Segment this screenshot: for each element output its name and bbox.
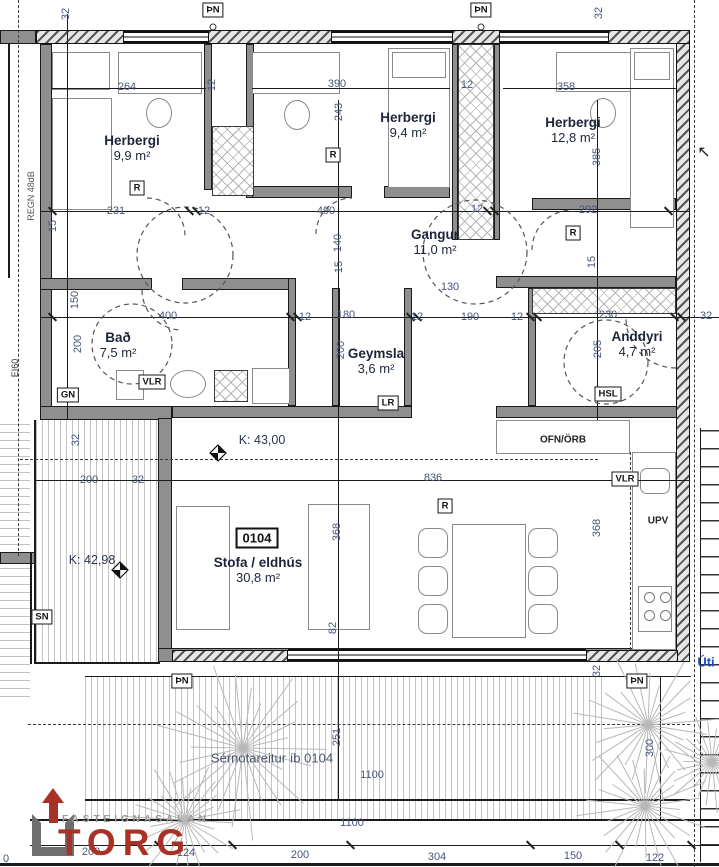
tag-hsl: HSL <box>595 387 622 402</box>
dimension-label: 368 <box>591 519 603 537</box>
dimension-label: 205 <box>592 340 604 358</box>
property-dashed-line <box>18 0 19 556</box>
stove-burner <box>660 610 671 621</box>
logo-arrow-bar <box>49 801 58 823</box>
dining-chair <box>528 604 558 634</box>
window-hatch <box>36 30 124 44</box>
dimension-label: 32 <box>593 7 605 19</box>
dimension-label: 140 <box>332 234 344 252</box>
dimension-label: 304 <box>428 851 446 863</box>
dimension-label: 200 <box>335 341 347 359</box>
dimension-label: 82 <box>327 622 339 634</box>
room-area: 11,0 m² <box>411 242 459 257</box>
closet-hatch <box>212 126 254 196</box>
furniture <box>252 368 290 404</box>
dimension-label: 12 <box>511 311 523 323</box>
tag-sn: SN <box>31 610 52 625</box>
room-name: Herbergi <box>545 115 601 130</box>
room-area: 7,5 m² <box>100 345 137 360</box>
dimension-label: 264 <box>118 81 136 93</box>
drawing-line <box>338 100 339 800</box>
dimension-label: 231 <box>107 205 125 217</box>
room-name: Gangur <box>411 227 459 242</box>
dining-chair <box>418 528 448 558</box>
unit-number-box: 0104 <box>236 528 279 549</box>
window-hatch <box>208 30 332 44</box>
furniture <box>52 98 112 210</box>
level-label: K: 42,98 <box>69 553 116 567</box>
tag-vlr: VLR <box>139 375 166 390</box>
dimension-label: 12 <box>471 203 483 215</box>
dimension-label: 12 <box>198 205 210 217</box>
room-label-herbergi-1: Herbergi9,4 m² <box>380 110 436 140</box>
dimension-label: 230 <box>599 309 617 321</box>
level-dashed-line <box>20 459 598 460</box>
dimension-label: 292 <box>579 204 597 216</box>
dimension-label: 12 <box>411 311 423 323</box>
dimension-label: 122 <box>646 852 664 864</box>
dimension-label: 12 <box>461 79 473 91</box>
dining-chair <box>418 604 448 634</box>
torg-logo: FASTEIGNASALAN TORG <box>24 784 254 866</box>
dimension-label: 358 <box>557 81 575 93</box>
text-label: Sérnotareitur íb 0104 <box>211 751 333 766</box>
tag-vlr: VLR <box>612 472 639 487</box>
dimension-label: 32 <box>591 665 603 677</box>
property-dashed-line <box>694 0 695 867</box>
stove-burner <box>660 592 671 603</box>
window-hatch <box>172 650 288 662</box>
tag-r: R <box>566 226 581 241</box>
wall <box>182 278 296 290</box>
dimension-label: 1100 <box>340 817 364 829</box>
dimension-label: 150 <box>564 850 582 862</box>
deck-hatch <box>36 420 158 662</box>
tag-lr: LR <box>378 396 399 411</box>
room-label-herbergi-0: Herbergi9,9 m² <box>104 133 160 163</box>
text-label: UPV <box>648 516 669 527</box>
room-label-ba--4: Bað7,5 m² <box>100 330 137 360</box>
wall <box>172 406 412 418</box>
room-label-herbergi-2: Herbergi12,8 m² <box>545 115 601 145</box>
dimension-label: 385 <box>591 148 603 166</box>
room-area: 9,9 m² <box>104 148 160 163</box>
dimension-label: 200 <box>72 335 84 353</box>
dining-chair <box>418 566 448 596</box>
furniture <box>634 52 670 80</box>
window-hatch <box>586 650 678 662</box>
dimension-label: 300 <box>644 739 656 757</box>
room-name: Herbergi <box>104 133 160 148</box>
tag-þn: ÞN <box>470 3 491 18</box>
wall <box>496 406 690 418</box>
room-area: 12,8 m² <box>545 130 601 145</box>
dimension-label: 200 <box>80 474 98 486</box>
dimension-label: 836 <box>424 472 442 484</box>
dimension-label: 12 <box>206 79 218 91</box>
wall <box>40 278 152 290</box>
drawing-line <box>660 676 661 820</box>
tag-r: R <box>438 499 453 514</box>
dimension-label: 1100 <box>360 769 384 781</box>
stove-burner <box>644 610 655 621</box>
window-frame <box>124 31 208 43</box>
text-label: REGN 48dB <box>26 171 36 221</box>
closet-hatch <box>214 370 248 402</box>
room-area: 9,4 m² <box>380 125 436 140</box>
floor-plan: 3226412390243123583238523112490122921514… <box>0 0 719 867</box>
dimension-label: 243 <box>333 103 345 121</box>
entrance-arrow-icon: ↖ <box>697 142 710 162</box>
dimension-label: 0 <box>3 853 9 865</box>
tag-r: R <box>326 148 341 163</box>
dimension-label: 368 <box>331 523 343 541</box>
dimension-label: 32 <box>700 310 712 322</box>
dimension-label: 251 <box>331 728 343 746</box>
dimension-label: 32 <box>132 474 144 486</box>
window-frame <box>332 31 452 43</box>
room-name: Anddyri <box>611 329 662 344</box>
wall <box>252 186 352 198</box>
drawing-line <box>30 552 32 664</box>
drawing-line <box>700 428 701 862</box>
dimension-label: 32 <box>70 434 82 446</box>
chair <box>284 100 310 130</box>
level-label: K: 43,00 <box>239 433 286 447</box>
wall <box>496 276 676 288</box>
dimension-label: 180 <box>337 309 355 321</box>
room-label-gangur-3: Gangur11,0 m² <box>411 227 459 257</box>
dimension-label: 32 <box>60 8 72 20</box>
tag-þn: ÞN <box>626 674 647 689</box>
window-hatch <box>452 30 500 44</box>
room-area: 3,6 m² <box>348 361 404 376</box>
room-label-geymsla-5: Geymsla3,6 m² <box>348 346 404 376</box>
room-name: Bað <box>100 330 137 345</box>
bathroom-sink <box>170 370 206 398</box>
room-name: Stofa / eldhús <box>214 555 303 570</box>
chair <box>146 98 172 128</box>
boundary-dashed-line <box>28 724 690 725</box>
dimension-label: 15 <box>586 256 598 268</box>
dining-chair <box>528 528 558 558</box>
drawing-line <box>252 88 450 89</box>
dimension-label: 15 <box>333 261 345 273</box>
logo-title: TORG <box>58 822 192 864</box>
wall <box>158 418 172 662</box>
window-frame <box>500 31 608 43</box>
wall <box>40 406 172 420</box>
drawing-line <box>34 420 36 664</box>
wall <box>204 44 212 190</box>
exterior-east-wall <box>676 30 690 662</box>
text-label: OFN/ÖRB <box>540 435 586 446</box>
wall <box>404 288 412 406</box>
tag-r: R <box>130 181 145 196</box>
kitchen-sink <box>640 468 670 494</box>
furniture <box>392 52 446 78</box>
dimension-label: 200 <box>291 849 309 861</box>
dimension-label: 190 <box>461 311 479 323</box>
room-label-stofa-eldh-s-7: Stofa / eldhús30,8 m² <box>214 555 303 585</box>
drawing-line <box>34 662 160 664</box>
tag-þn: ÞN <box>171 674 192 689</box>
room-label-anddyri-6: Anddyri4,7 m² <box>611 329 662 359</box>
text-label: EI60 <box>10 359 20 378</box>
dimension-label: 15 <box>47 220 59 232</box>
drawing-line <box>8 44 10 278</box>
room-name: Herbergi <box>380 110 436 125</box>
window-hatch <box>608 30 690 44</box>
room-area: 30,8 m² <box>214 570 303 585</box>
furniture <box>52 52 110 90</box>
dimension-label: 130 <box>441 281 459 293</box>
outdoor-steps <box>700 430 719 860</box>
room-area: 4,7 m² <box>611 344 662 359</box>
tag-gn: GN <box>57 388 79 403</box>
drawing-line <box>503 88 676 89</box>
tag-þn: ÞN <box>202 3 223 18</box>
dimension-label: 150 <box>69 291 81 309</box>
room-name: Geymsla <box>348 346 404 361</box>
stove-burner <box>644 592 655 603</box>
dimension-label: 390 <box>328 78 346 90</box>
dimension-label: 12 <box>299 311 311 323</box>
dimension-label: 400 <box>159 310 177 322</box>
window-frame <box>288 649 586 661</box>
furniture <box>452 524 526 638</box>
dining-chair <box>528 566 558 596</box>
text-label: Úti <box>697 655 714 670</box>
drawing-line <box>67 14 68 420</box>
dimension-label: 490 <box>317 205 335 217</box>
